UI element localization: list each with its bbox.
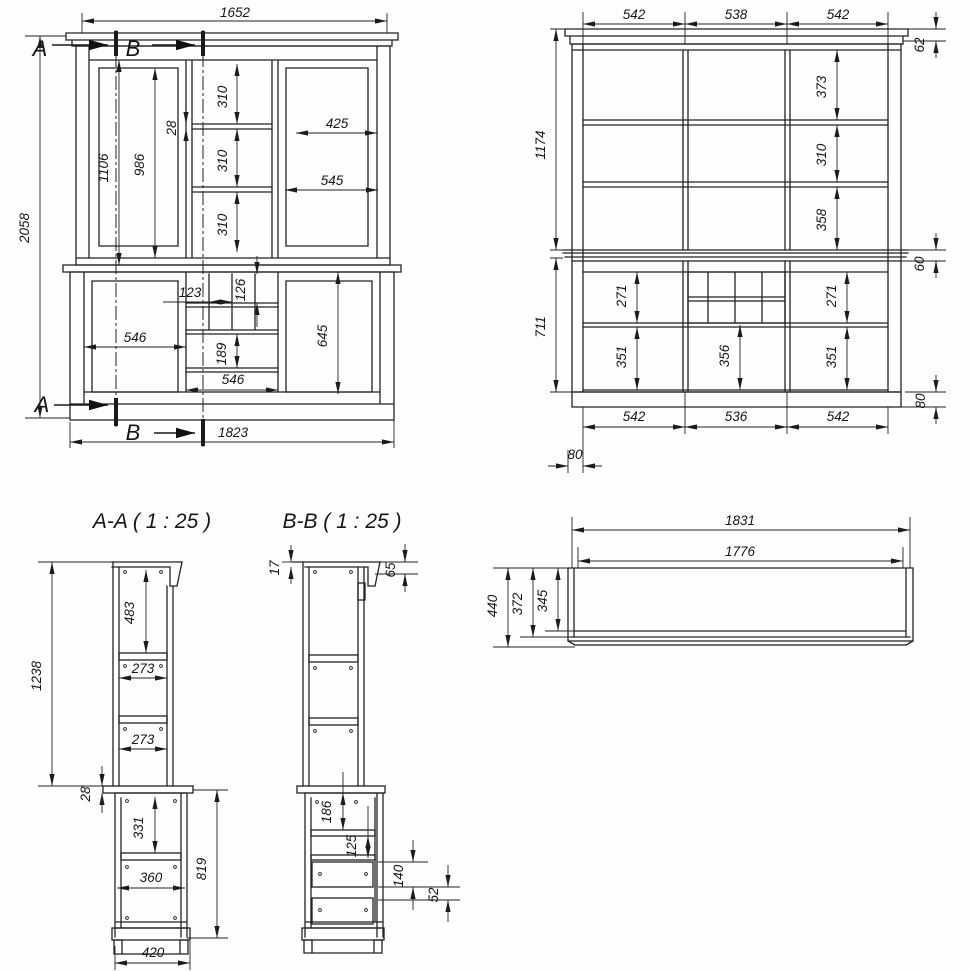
dim-label: 373 bbox=[814, 75, 829, 98]
bb-shelf-1 bbox=[309, 655, 358, 662]
drawing-svg: 1652 2058 1106 986 28 310 310 310 425 54… bbox=[0, 0, 970, 971]
dim-rear-cornice-height: 62 bbox=[903, 12, 946, 58]
dim-label: 536 bbox=[725, 409, 748, 424]
dim-label: 819 bbox=[194, 857, 209, 880]
dim-label: 310 bbox=[215, 85, 230, 108]
dim-front-glass-height: 986 bbox=[132, 68, 155, 258]
bb-plinth-feet bbox=[304, 940, 382, 953]
dim-aa-lower-height: 819 bbox=[187, 790, 228, 938]
bb-shelf-4 bbox=[311, 830, 375, 836]
bb-shelf-2 bbox=[309, 718, 358, 725]
dim-label: 542 bbox=[623, 409, 646, 424]
section-bb-title: B-B ( 1 : 25 ) bbox=[282, 510, 401, 533]
front-elevation-view: 1652 2058 1106 986 28 310 310 310 425 54… bbox=[17, 5, 401, 448]
dim-label: 1106 bbox=[96, 153, 111, 183]
dim-plan-inner-width: 1776 bbox=[578, 544, 903, 568]
dim-aa-top-clearance: 483 bbox=[122, 570, 146, 653]
dim-label: 711 bbox=[533, 316, 548, 338]
rear-cornice bbox=[565, 29, 908, 44]
section-marker-b-bottom: B bbox=[126, 420, 195, 445]
dim-label: 60 bbox=[912, 256, 927, 272]
dim-label: 345 bbox=[535, 589, 550, 612]
section-aa-title: A-A ( 1 : 25 ) bbox=[91, 510, 211, 533]
dim-aa-worktop-thickness: 28 bbox=[78, 766, 102, 813]
rear-elevation-view: 542 538 542 62 1174 373 310 358 60 711 2… bbox=[533, 7, 946, 473]
dim-rear-upper-height: 1174 bbox=[533, 29, 565, 250]
dim-aa-shelf-depth-1: 273 bbox=[119, 661, 167, 678]
dim-label: 440 bbox=[485, 594, 500, 617]
dim-aa-shelf-depth-2: 273 bbox=[119, 732, 167, 749]
dim-label: 273 bbox=[131, 732, 155, 747]
aa-plinth-band bbox=[112, 928, 190, 940]
dim-label: 28 bbox=[78, 786, 93, 803]
dim-rear-plinth-height: 80 bbox=[901, 375, 946, 424]
rear-plinth bbox=[572, 392, 901, 407]
dim-label: 52 bbox=[426, 887, 441, 903]
rear-mid-band bbox=[563, 250, 908, 261]
dim-label: 356 bbox=[717, 344, 732, 367]
dim-bb-cornice-drop: 65 bbox=[375, 544, 418, 592]
rear-wine-rack-grid bbox=[688, 272, 785, 323]
bb-worktop-ledge bbox=[297, 786, 385, 793]
dim-label: 358 bbox=[814, 208, 829, 231]
dim-label: 273 bbox=[131, 661, 155, 676]
front-mid-band bbox=[63, 265, 401, 272]
dim-bb-top-panel: 17 bbox=[267, 545, 293, 584]
dim-label: 542 bbox=[623, 7, 646, 22]
dim-label: 2058 bbox=[17, 212, 32, 244]
dim-front-shelf-bay-top: 310 bbox=[215, 64, 237, 124]
dim-front-shelf-thickness: 28 bbox=[164, 106, 186, 147]
dim-front-cubby-width: 123 bbox=[163, 285, 232, 302]
rear-upper-shelves bbox=[583, 120, 888, 187]
dim-label: 1823 bbox=[218, 425, 249, 440]
section-letter: B bbox=[126, 36, 141, 61]
dim-label: 331 bbox=[131, 817, 146, 840]
dim-front-left-door-width: 546 bbox=[84, 330, 186, 347]
section-aa-view: A-A ( 1 : 25 ) 1238 483 273 273 28 331 bbox=[29, 510, 228, 970]
dim-label: 80 bbox=[913, 393, 928, 409]
aa-lower-panels bbox=[115, 793, 187, 937]
dim-label: 28 bbox=[164, 120, 179, 137]
dim-label: 125 bbox=[344, 834, 359, 857]
dim-label: 271 bbox=[824, 285, 839, 309]
dim-label: 186 bbox=[319, 800, 334, 823]
dim-label: 17 bbox=[267, 560, 282, 576]
plan-outline bbox=[568, 568, 913, 645]
dim-front-drawer-width: 546 bbox=[186, 372, 278, 390]
dim-label: 1776 bbox=[725, 544, 756, 559]
dim-front-right-glass-width: 425 bbox=[296, 116, 377, 133]
dim-label: 546 bbox=[124, 330, 147, 345]
dim-label: 80 bbox=[567, 447, 583, 462]
dim-label: 351 bbox=[824, 346, 839, 369]
dim-label: 310 bbox=[215, 213, 230, 236]
dim-label: 1238 bbox=[29, 660, 44, 691]
aa-worktop-ledge bbox=[103, 786, 193, 793]
dim-front-overall-width: 1652 bbox=[82, 5, 387, 33]
dim-bb-niche-height: 186 bbox=[319, 772, 343, 830]
dim-rear-lower-height: 711 bbox=[533, 258, 572, 392]
dim-front-cubby-height: 126 bbox=[233, 256, 257, 327]
dim-label: 351 bbox=[614, 346, 629, 369]
dim-front-base-width: 1823 bbox=[70, 406, 394, 448]
dim-label: 140 bbox=[391, 864, 406, 887]
dim-label: 271 bbox=[614, 285, 629, 309]
dim-rear-top-bays: 542 538 542 bbox=[583, 7, 888, 44]
dim-label: 425 bbox=[326, 116, 349, 131]
dim-label: 65 bbox=[383, 562, 398, 578]
dim-label: 360 bbox=[140, 870, 163, 885]
dim-label: 538 bbox=[725, 7, 748, 22]
dim-label: 542 bbox=[827, 7, 850, 22]
dim-label: 1831 bbox=[725, 513, 755, 528]
section-letter: B bbox=[126, 420, 141, 445]
dim-label: 1652 bbox=[220, 5, 251, 20]
front-upper-carcass bbox=[76, 46, 390, 265]
dim-label: 420 bbox=[142, 945, 165, 960]
section-bb-view: B-B ( 1 : 25 ) 17 65 186 125 bbox=[267, 510, 460, 953]
dim-rear-band-height: 60 bbox=[901, 233, 946, 278]
dim-front-lower-door-height: 645 bbox=[315, 272, 338, 394]
dim-aa-upper-height: 1238 bbox=[29, 562, 52, 786]
bb-plinth-band bbox=[302, 928, 384, 940]
dim-label: 986 bbox=[132, 153, 147, 176]
dim-aa-lower-clearance: 331 bbox=[131, 797, 155, 853]
dim-label: 123 bbox=[179, 285, 202, 300]
aa-shelf-3 bbox=[121, 853, 181, 860]
dim-label: 645 bbox=[315, 324, 330, 347]
dim-plan-depth-overall: 440 bbox=[485, 568, 508, 647]
aa-shelf-1 bbox=[119, 653, 167, 660]
dim-front-shelf-bay-bot: 310 bbox=[215, 192, 237, 252]
dim-label: 126 bbox=[233, 278, 248, 301]
dim-label: 1174 bbox=[533, 130, 548, 159]
dim-label: 372 bbox=[510, 592, 525, 615]
section-letter: A bbox=[33, 392, 50, 417]
bb-upper-panels bbox=[293, 562, 380, 786]
dim-front-overall-height: 2058 bbox=[17, 36, 40, 418]
bb-rail-band bbox=[311, 855, 375, 860]
dim-rear-side-offset: 80 bbox=[548, 434, 602, 473]
dim-front-shelf-bay-mid: 310 bbox=[215, 129, 237, 187]
dim-label: 545 bbox=[321, 173, 344, 188]
dim-label: 483 bbox=[122, 601, 137, 624]
dim-label: 310 bbox=[215, 149, 230, 172]
dim-rear-door-heights: 351 356 351 bbox=[614, 325, 847, 390]
dim-rear-bottom-bays: 542 536 542 bbox=[583, 392, 888, 434]
aa-leaders bbox=[38, 562, 113, 786]
technical-drawing-sheet: 1652 2058 1106 986 28 310 310 310 425 54… bbox=[0, 0, 970, 971]
plan-view-worktop: 1831 1776 440 372 345 bbox=[485, 513, 913, 647]
dim-rear-bay-heights: 373 310 358 bbox=[814, 50, 837, 250]
dim-label: 62 bbox=[912, 37, 927, 53]
plan-ext-lines bbox=[493, 568, 575, 647]
dim-plan-depth-inner: 345 bbox=[535, 568, 558, 631]
aa-shelf-2 bbox=[119, 716, 167, 723]
rear-carcass bbox=[572, 44, 901, 392]
dim-bb-shelf-gap: 125 bbox=[344, 806, 368, 858]
section-letter: A bbox=[31, 36, 48, 61]
dim-plan-overall-width: 1831 bbox=[572, 513, 910, 568]
dim-plan-depth-mid: 372 bbox=[510, 568, 533, 637]
dim-aa-shelf-depth-3: 360 bbox=[117, 870, 185, 888]
bb-lower-panels bbox=[305, 793, 383, 937]
dim-label: 189 bbox=[214, 342, 229, 365]
dim-front-right-door-width: 545 bbox=[285, 173, 378, 190]
dim-label: 546 bbox=[222, 372, 245, 387]
dim-label: 310 bbox=[814, 143, 829, 166]
dim-front-drawer-height: 189 bbox=[214, 334, 237, 368]
dim-aa-base-depth: 420 bbox=[115, 941, 190, 970]
dim-label: 542 bbox=[827, 409, 850, 424]
